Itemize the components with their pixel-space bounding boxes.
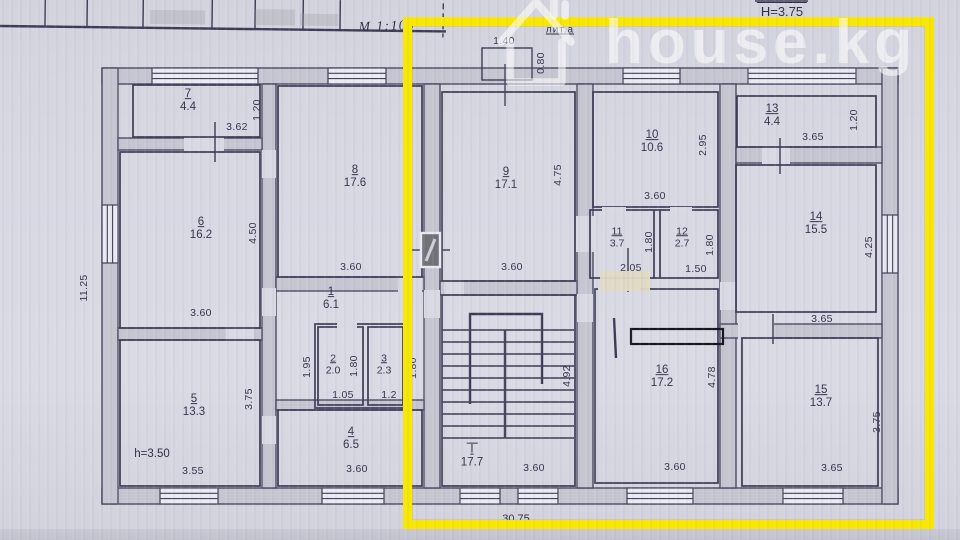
floor-height-note: h=3.50 xyxy=(134,448,170,460)
erase-patch xyxy=(600,271,650,291)
room-label-15: 1513.7 xyxy=(810,384,832,410)
dim-stairs-height: 4.92 xyxy=(561,365,573,387)
dimension-ticks xyxy=(215,122,780,358)
dim-room16-width: 3.60 xyxy=(664,461,686,473)
room-label-9: 917.1 xyxy=(495,166,517,192)
dim-room13-width: 3.65 xyxy=(802,131,824,143)
dim-room2-width: 1.05 xyxy=(332,389,354,401)
interior-walls xyxy=(118,84,882,488)
room-label-14: 1415.5 xyxy=(805,211,827,237)
room-label-11: 113.7 xyxy=(610,226,625,250)
dim-porch-width: 1.40 xyxy=(493,35,515,47)
dim-room5-width: 3.55 xyxy=(182,465,204,477)
dim-room12-height: 1.80 xyxy=(704,234,716,256)
dim-room15-height: 3.75 xyxy=(871,411,883,433)
dim-room4-width: 3.60 xyxy=(346,463,368,475)
room-label-6: 616.2 xyxy=(190,216,212,242)
ceiling-height-note: Н=3.75 xyxy=(757,2,807,19)
dim-total-depth: 11.25 xyxy=(78,275,90,302)
room-label-8: 817.6 xyxy=(344,164,366,190)
dim-room13-height: 1.20 xyxy=(848,109,860,131)
room-label-1: 16.1 xyxy=(323,286,339,312)
page-edge-strip xyxy=(0,529,960,540)
dim-total-width: 30.75 xyxy=(502,513,530,525)
dim-room3-width: 1.2 xyxy=(381,389,397,401)
dim-room6-height: 4.50 xyxy=(247,222,259,244)
dim-room15-width: 3.65 xyxy=(821,462,843,474)
room-label-10: 1010.6 xyxy=(641,129,663,155)
room-label-13: 134.4 xyxy=(764,103,780,129)
dim-room16-height: 4.78 xyxy=(706,366,718,388)
black-redaction-box xyxy=(631,329,723,344)
room-label-4: 46.5 xyxy=(343,426,359,452)
dim-room8-height: 4.75 xyxy=(401,164,413,186)
dim-room10-height: 2.95 xyxy=(697,134,709,156)
room-label-stairs: I17.7 xyxy=(461,443,483,470)
dim-room12-width: 1.50 xyxy=(685,263,707,275)
dim-room9-height: 4.75 xyxy=(552,164,564,186)
dim-room10-width: 3.60 xyxy=(644,190,666,202)
dim-room9-width: 3.60 xyxy=(501,261,523,273)
scale-note: М 1:100 xyxy=(358,17,415,35)
liter-label: лит.а xyxy=(546,25,574,36)
dim-room5-height: 3.75 xyxy=(243,388,255,410)
floorplan-scan: 74.4 616.2 513.3 817.6 16.1 22.0 32.3 46… xyxy=(0,0,960,540)
dim-lobby-depth: 1.95 xyxy=(301,356,313,378)
room-label-2: 22.0 xyxy=(326,353,341,377)
dim-room8-width: 3.60 xyxy=(340,261,362,273)
dim-stairs-width: 3.60 xyxy=(523,462,545,474)
dim-room7-height: 1.20 xyxy=(251,99,263,121)
dim-room14-width: 3.65 xyxy=(811,313,833,325)
dim-room6-width: 3.60 xyxy=(190,307,212,319)
dim-room11-width: 2.05 xyxy=(620,262,642,274)
staircase xyxy=(442,314,574,438)
dim-room3-height: 1.80 xyxy=(407,357,419,379)
room-label-7: 74.4 xyxy=(180,88,196,114)
dim-porch-depth: 0.80 xyxy=(535,52,547,74)
room-label-5: 513.3 xyxy=(183,393,205,419)
room-label-12: 122.7 xyxy=(675,226,690,250)
dim-room2-height: 1.80 xyxy=(348,355,360,377)
dim-room7-width: 3.62 xyxy=(226,121,248,133)
dim-room14-height: 4.25 xyxy=(863,236,875,258)
room-label-16: 1617.2 xyxy=(651,364,673,390)
dim-room11-height: 1.80 xyxy=(643,231,655,253)
room-label-3: 32.3 xyxy=(377,353,392,377)
